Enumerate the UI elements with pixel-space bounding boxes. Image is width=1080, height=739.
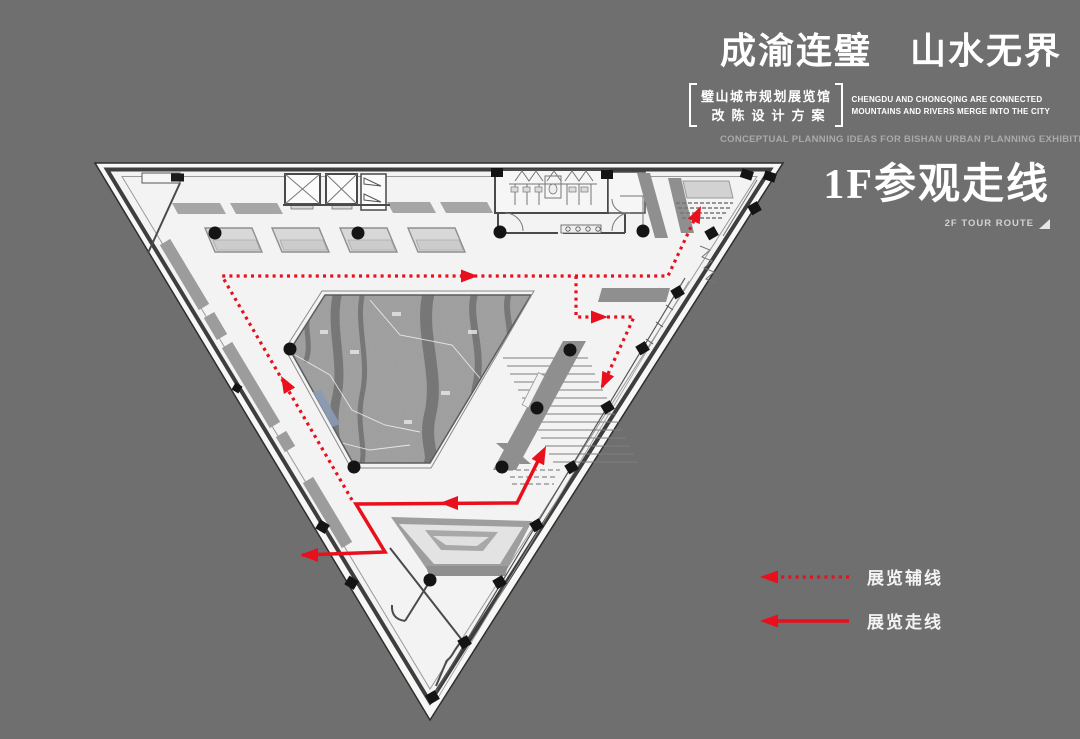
elevator-block [283, 174, 390, 210]
slide-canvas: 成渝连璧 山水无界 璧山城市规划展览馆 改陈设计方案 CHENGDU AND C… [0, 0, 1080, 739]
right-bracket-icon [835, 83, 843, 127]
corner-triangle-icon [1039, 219, 1050, 229]
section-subtitle: 2F TOUR ROUTE [945, 218, 1034, 229]
header-english-line1: CHENGDU AND CHONGQING ARE CONNECTED [851, 95, 1050, 104]
section-block: 1F参观走线 2F TOUR ROUTE [823, 150, 1050, 229]
section-title: 1F参观走线 [823, 150, 1050, 211]
header-english-line2: MOUNTAINS AND RIVERS MERGE INTO THE CITY [851, 107, 1050, 116]
route-legend: 展览辅线 展览走线 [757, 564, 943, 633]
left-bracket-icon [689, 83, 697, 127]
bracket-group: 璧山城市规划展览馆 改陈设计方案 [689, 83, 844, 127]
bracket-line2: 改陈设计方案 [701, 105, 832, 124]
header-block: 成渝连璧 山水无界 璧山城市规划展览馆 改陈设计方案 CHENGDU AND C… [720, 22, 1050, 145]
legend-label: 展览走线 [867, 608, 943, 633]
legend-item-main: 展览走线 [757, 608, 943, 633]
header-subtitle: CONCEPTUAL PLANNING IDEAS FOR BISHAN URB… [720, 134, 1050, 145]
header-sub-block: 璧山城市规划展览馆 改陈设计方案 CHENGDU AND CHONGQING A… [720, 83, 1050, 127]
legend-item-aux: 展览辅线 [757, 564, 943, 589]
solid-arrow-icon [757, 613, 852, 629]
bracket-line1: 璧山城市规划展览馆 [701, 86, 832, 105]
dotted-arrow-icon [757, 569, 852, 585]
legend-label: 展览辅线 [867, 564, 943, 589]
mid-gray-bar [598, 288, 670, 302]
page-title: 成渝连璧 山水无界 [720, 22, 1050, 74]
